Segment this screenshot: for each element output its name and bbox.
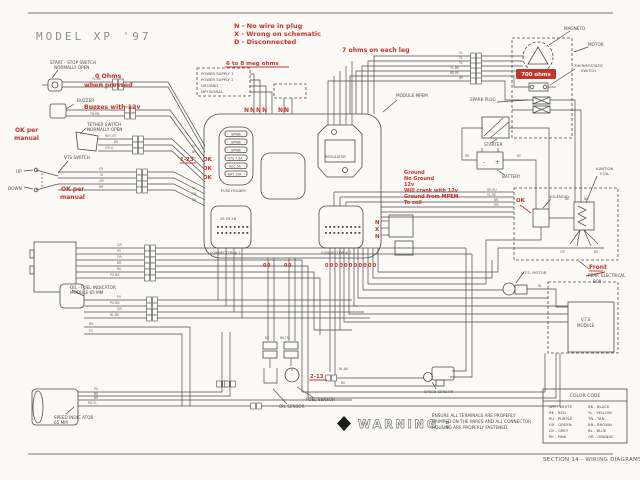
- color-code-entry: PU - PURPLE: [549, 416, 573, 421]
- color-code-entry: RE - RED: [549, 410, 566, 415]
- oil-sensor-connector-a: [263, 342, 277, 349]
- speed-sensor-body: [432, 367, 454, 380]
- color-code-title: COLOR CODE: [570, 393, 601, 399]
- component-label: VTS 7.5A: [228, 157, 243, 161]
- wire: [452, 248, 466, 371]
- connector-pin: [346, 226, 348, 228]
- wire-color-label: PU-BK: [110, 301, 120, 305]
- inline-connector: [137, 169, 142, 175]
- component-label: MODULE MPEM: [396, 93, 428, 98]
- component-label: 65 MM: [54, 420, 68, 425]
- red-annotation: OK per: [15, 127, 38, 134]
- ignition-coil: [574, 202, 594, 230]
- wire-color-label: BR: [117, 261, 122, 265]
- magneto-coil: [528, 47, 548, 64]
- red-annotation: N: [375, 234, 380, 240]
- legend-line-d: D - Disconnected: [234, 38, 321, 46]
- wire: [550, 100, 575, 202]
- red-annotation: NN: [278, 107, 290, 114]
- color-code-entry: OR - ORANGE: [588, 434, 614, 439]
- inline-connector: [139, 148, 144, 154]
- wiring-diagram-page: 700 ohmsSTART - STOP SWITCHNORMALLY OPEN…: [0, 0, 640, 480]
- inline-connector: [151, 275, 156, 281]
- connector-pin: [329, 232, 331, 234]
- wire: [450, 254, 472, 377]
- component-label: ELECTRICAL: [601, 273, 626, 278]
- connector-pin: [342, 232, 344, 234]
- wire: [579, 261, 589, 269]
- wire: [574, 47, 588, 52]
- component-label: -: [483, 159, 485, 166]
- nxn-component-a: [389, 215, 413, 237]
- wire-color-label: TN: [191, 192, 197, 196]
- inline-connector: [145, 245, 150, 251]
- red-annotation: OK: [203, 175, 213, 181]
- red-annotation: 00: [284, 263, 292, 269]
- wire-color-label: VI: [100, 173, 103, 177]
- page-title: MODEL XP '97: [36, 30, 151, 43]
- wire: [273, 389, 287, 404]
- color-code-entry: TN - TAN: [587, 416, 605, 421]
- wire-color-label: BK: [494, 198, 499, 202]
- inline-connector: [147, 297, 152, 303]
- wire: [349, 248, 568, 314]
- connector-pin: [342, 226, 344, 228]
- component-label: SPEED SENSOR: [424, 389, 454, 394]
- wire-color-label: YL-BK: [450, 66, 460, 70]
- wire: [264, 368, 277, 383]
- red-annotation: manual: [14, 135, 39, 142]
- connector-pin: [230, 232, 232, 234]
- inline-connector: [231, 381, 236, 387]
- wire-color-label: BK: [594, 250, 599, 254]
- legend-line-n: N - No wire in plug: [234, 22, 321, 30]
- wire: [374, 56, 471, 114]
- component-label: MOTOR: [588, 42, 604, 47]
- wire: [354, 248, 568, 306]
- component-label: SPARK PLUG: [470, 97, 496, 102]
- wire-color-label: GR: [117, 307, 122, 311]
- component-label: V.T.S. MOTOR: [521, 270, 547, 275]
- inline-connector: [153, 297, 158, 303]
- wire: [78, 332, 230, 396]
- component-label: ACC 5A: [229, 165, 242, 169]
- connector-pin: [354, 232, 356, 234]
- component-label: DOWN: [8, 186, 22, 191]
- color-code-entry: WH - WHITE: [549, 404, 572, 409]
- inline-connector: [125, 113, 130, 119]
- component-label: SPARE: [231, 149, 241, 153]
- inline-connector: [217, 381, 222, 387]
- connector-pin: [325, 226, 327, 228]
- inline-connector: [151, 251, 156, 257]
- wire-color-label: BR: [99, 185, 104, 189]
- connector-pin: [225, 226, 227, 228]
- wire-color-label: GR: [560, 250, 565, 254]
- connector-pin: [221, 232, 223, 234]
- wire-color-label: BR: [94, 396, 99, 400]
- wire: [84, 327, 190, 406]
- oil-sensor-connector-b: [263, 351, 277, 358]
- annotation-legend: N - No wire in plug X - Wrong on schemat…: [234, 22, 321, 46]
- inline-connector: [151, 245, 156, 251]
- wire: [147, 172, 205, 188]
- connector-pin: [246, 232, 248, 234]
- wire: [78, 332, 222, 392]
- wire-color-label: BR: [459, 76, 464, 80]
- component-label: SWITCH: [581, 68, 596, 73]
- wire-color-label: PU: [94, 387, 99, 391]
- connector-pin: [238, 226, 240, 228]
- inline-connector: [145, 263, 150, 269]
- connector-pin: [217, 226, 219, 228]
- section-footer: SECTION 14 - WIRING DIAGRAMS: [543, 457, 640, 463]
- inline-connector: [153, 303, 158, 309]
- mpem-inner-box: [261, 153, 305, 199]
- wire-color-label: GY: [99, 167, 103, 171]
- red-annotation: OK: [203, 166, 213, 172]
- component-label: 25 25 26: [220, 217, 237, 221]
- wire: [24, 187, 33, 189]
- wire-color-label: TN-BK: [89, 112, 101, 116]
- solenoid: [533, 209, 549, 227]
- wire: [584, 230, 598, 244]
- component-label: MODULE: [577, 323, 595, 328]
- red-annotation: Front: [589, 264, 607, 271]
- inline-connector: [137, 187, 142, 193]
- connector-pin: [221, 226, 223, 228]
- component-label: SPARE: [231, 141, 241, 145]
- red-annotation: 0 Ohms: [95, 73, 122, 80]
- inline-connector: [257, 403, 262, 409]
- inline-connector: [251, 403, 256, 409]
- red-annotation: OK: [516, 198, 526, 204]
- red-annotation: NNNN: [244, 107, 268, 114]
- wire-color-label: YL: [459, 56, 463, 60]
- inline-connector: [131, 113, 136, 119]
- component-label: BATTERY: [502, 174, 521, 179]
- speed-sensor-head: [424, 373, 433, 382]
- wire-color-label: BK: [89, 322, 94, 326]
- red-annotation: To coil: [404, 200, 422, 206]
- start-stop-switch: [48, 79, 62, 91]
- component-label: UP: [16, 169, 22, 174]
- component-label: REGULATOR: [325, 155, 346, 159]
- inline-connector: [153, 309, 158, 315]
- inline-connector: [477, 78, 482, 84]
- connector-pin: [338, 232, 340, 234]
- component-label: STARTER: [484, 142, 503, 147]
- connector-pin: [242, 232, 244, 234]
- inline-connector: [225, 381, 230, 387]
- wire: [66, 104, 74, 109]
- connector-pin: [234, 226, 236, 228]
- red-mark-line: [520, 205, 531, 213]
- connector-pin: [350, 232, 352, 234]
- starter: [482, 117, 509, 138]
- warning-text-line: HOUSING ARE PROPERLY FASTENED.: [432, 425, 508, 430]
- inline-connector: [145, 251, 150, 257]
- component-label: BAT 15A: [228, 173, 242, 177]
- wire-color-label: PU: [89, 329, 94, 333]
- connector-pin: [338, 226, 340, 228]
- connector-pin: [225, 232, 227, 234]
- connector-pin: [325, 232, 327, 234]
- inline-connector: [471, 78, 476, 84]
- component-label: MPI SIGNAL: [201, 89, 224, 94]
- buzzer: [50, 104, 66, 118]
- component-label: COIL: [600, 171, 610, 176]
- inline-connector: [143, 169, 148, 175]
- wire: [155, 272, 352, 330]
- connector-pin: [359, 232, 361, 234]
- wire: [52, 70, 58, 78]
- wire: [584, 230, 591, 246]
- red-annotation: 6 to 8 meg ohms: [226, 61, 279, 67]
- fuel-sensor-connector-b: [284, 351, 298, 358]
- wire-color-label: BK-TN: [280, 336, 290, 340]
- connector-pin: [242, 226, 244, 228]
- inline-connector: [151, 263, 156, 269]
- warning-text-line: ENSURE ALL TERMINALS ARE PROPERLY: [432, 413, 516, 418]
- wire-color-label: BL-BK: [339, 367, 349, 371]
- component-label: CONNECTOR # 2: [210, 251, 241, 255]
- inline-connector: [137, 175, 142, 181]
- wire-color-label: OR: [117, 255, 123, 259]
- connector-pin: [333, 226, 335, 228]
- wire-color-label: PU: [117, 249, 122, 253]
- wire-color-label: PU-BK: [110, 273, 120, 277]
- wire-color-label: PU: [117, 295, 122, 299]
- component-label: FUSE HOLDER: [221, 189, 246, 193]
- wire-color-label: YL: [459, 51, 463, 55]
- wire-color-label: RE: [465, 154, 469, 158]
- warning-diamond-icon: [337, 416, 351, 431]
- gauge-tab-2: [30, 266, 34, 274]
- red-annotation: 00000000000: [325, 263, 378, 269]
- tether-switch-body: [76, 132, 98, 151]
- wire-color-label: YL-RE: [487, 193, 496, 197]
- inline-connector: [139, 142, 144, 148]
- warning-text-line: CRIMPED ON THE WIRES AND ALL CONNECTOR: [432, 419, 531, 424]
- red-annotation: 00: [263, 263, 271, 269]
- inline-connector: [137, 181, 142, 187]
- inline-connector: [133, 142, 138, 148]
- vts-motor-box: [515, 285, 527, 294]
- wire: [58, 161, 68, 173]
- thermostatic-switch: [529, 83, 548, 91]
- component-label: POWER SUPPLY 2: [201, 77, 234, 82]
- regulator-screw-bottom: [343, 168, 348, 173]
- component-label: CONNECTOR # 1: [321, 251, 352, 255]
- wire-color-label: GR: [494, 203, 499, 207]
- wire-color-label: BL-BK: [110, 313, 120, 317]
- component-label: +: [495, 159, 500, 166]
- inline-connector: [133, 148, 138, 154]
- connector-pin: [329, 226, 331, 228]
- connector-pin: [333, 232, 335, 234]
- color-code-entry: YL - YELLOW: [588, 410, 612, 415]
- wire: [486, 227, 541, 260]
- red-annotation: OK: [203, 157, 213, 163]
- component-label: VTS SWITCH: [64, 155, 90, 160]
- wire-color-label: BK: [117, 267, 122, 271]
- red-annotation: OK per: [61, 186, 84, 193]
- wire: [36, 170, 58, 176]
- component-label: NORMALLY OPEN: [87, 127, 122, 132]
- wire-color-label: YL: [192, 144, 196, 148]
- wire: [509, 128, 549, 209]
- component-label: GROUND: [201, 83, 218, 88]
- red-annotation: 1-23: [180, 157, 194, 163]
- wire-color-label: BK: [114, 140, 119, 144]
- component-label: V.T.S.: [581, 317, 592, 322]
- wire-color-label: BK: [265, 336, 270, 340]
- connector-pin: [234, 232, 236, 234]
- wire: [328, 81, 471, 125]
- connector-pin: [350, 226, 352, 228]
- wire-color-label: RE: [517, 154, 521, 158]
- red-annotation: 2-13: [310, 374, 324, 380]
- inline-connector: [151, 269, 156, 275]
- inline-connector: [147, 309, 152, 315]
- wire-color-label: RE-PU: [487, 188, 497, 192]
- wire-color-label: BL: [538, 284, 542, 288]
- wiring-diagram-canvas: 700 ohmsSTART - STOP SWITCHNORMALLY OPEN…: [0, 0, 640, 480]
- component-label: MODULE 65 MM: [70, 290, 104, 295]
- red-annotation: when pressed: [84, 82, 133, 89]
- color-code-entry: BL - BLUE: [588, 428, 607, 433]
- inline-connector: [153, 315, 158, 321]
- wire-color-label: GR: [117, 243, 122, 247]
- speed-sensor-foot: [436, 380, 444, 386]
- wire-color-label: BK-RE: [450, 71, 459, 75]
- wire: [373, 248, 492, 278]
- component-label: OIL SENSOR: [279, 404, 305, 409]
- wire: [36, 184, 58, 190]
- component-label: FUEL SENSOR: [306, 397, 335, 402]
- wire-color-label: WH-GY: [105, 134, 116, 138]
- fuel-sensor-connector-a: [284, 342, 298, 349]
- inline-connector: [139, 136, 144, 142]
- color-code-entry: GR - GREEN: [549, 422, 572, 427]
- connector-pin: [354, 226, 356, 228]
- inline-connector: [147, 303, 152, 309]
- resistance-highlight-text: 700 ohms: [521, 72, 551, 78]
- wire: [432, 382, 436, 389]
- inline-connector: [133, 136, 138, 142]
- color-code-entry: BR - BROWN: [588, 422, 612, 427]
- inline-connector: [332, 375, 337, 381]
- wire: [344, 248, 568, 322]
- component-label: BOX: [593, 279, 602, 284]
- wire: [383, 100, 397, 112]
- color-code-entry: PK - PINK: [549, 434, 567, 439]
- inline-connector: [143, 175, 148, 181]
- regulator-screw-top: [332, 130, 337, 135]
- red-annotation: Buzzes with 12v: [84, 104, 140, 111]
- component-label: BUZZER: [77, 98, 94, 103]
- inline-connector: [145, 275, 150, 281]
- gauge-tab-1: [30, 250, 34, 258]
- component-label: SPARE: [231, 133, 241, 137]
- red-annotation: N: [375, 220, 380, 226]
- wire: [155, 260, 302, 392]
- wire: [84, 334, 182, 406]
- connector-pin: [238, 232, 240, 234]
- red-annotation: manual: [60, 194, 85, 201]
- wire-color-label: OR: [99, 179, 105, 183]
- wire: [368, 248, 486, 284]
- component-label: REAR: [588, 273, 599, 278]
- color-code-entry: GY - GREY: [549, 428, 569, 433]
- wire-color-label: BK: [565, 197, 570, 201]
- legend-line-x: X - Wrong on schematic: [234, 30, 321, 38]
- component-label: NORMALLY OPEN: [54, 65, 89, 70]
- vts-motor: [503, 283, 515, 295]
- inline-connector: [147, 315, 152, 321]
- inline-connector: [143, 181, 148, 187]
- red-annotation: X: [375, 227, 380, 233]
- inline-connector: [145, 257, 150, 263]
- connector-pin: [359, 226, 361, 228]
- wire-color-label: GR-YL: [105, 146, 114, 150]
- connector-pin: [217, 232, 219, 234]
- color-code-entry: BK - BLACK: [588, 404, 610, 409]
- inline-connector: [151, 257, 156, 263]
- wire: [24, 170, 33, 171]
- wire-color-label: VI: [192, 186, 195, 190]
- wire-color-label: PU-YL: [88, 401, 97, 405]
- connector-pin: [346, 232, 348, 234]
- inline-connector: [143, 187, 148, 193]
- component-label: POWER SUPPLY 1: [201, 71, 234, 76]
- connector-pin: [230, 226, 232, 228]
- connector-pin: [246, 226, 248, 228]
- aux-dashed-box: [274, 84, 306, 98]
- component-label: MAGNETO: [564, 26, 586, 31]
- wire-color-label: YL: [459, 61, 463, 65]
- red-annotation: 7 ohms on each leg: [342, 47, 410, 54]
- wire: [543, 199, 551, 208]
- wire-color-label: BK: [341, 381, 346, 385]
- inline-connector: [145, 269, 150, 275]
